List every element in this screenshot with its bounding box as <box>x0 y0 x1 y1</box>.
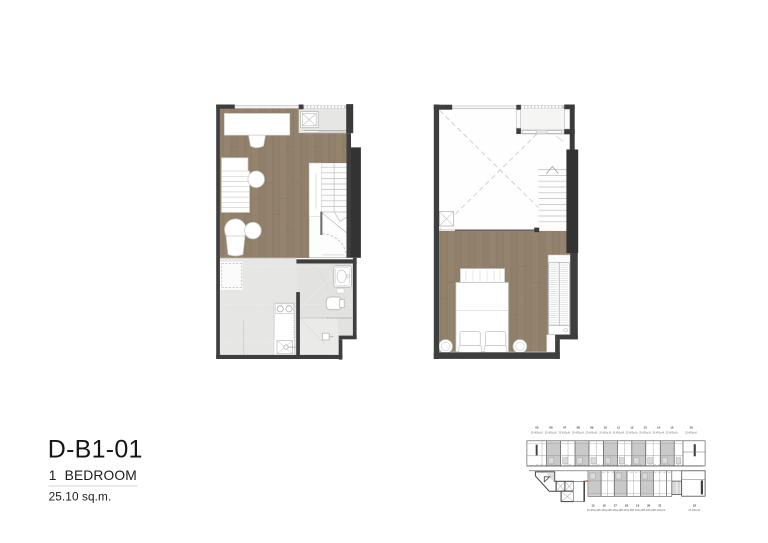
svg-text:25.10 sq.m.: 25.10 sq.m. <box>49 490 112 504</box>
svg-text:18: 18 <box>625 504 629 508</box>
svg-text:19: 19 <box>636 504 640 508</box>
svg-text:11: 11 <box>617 426 620 430</box>
svg-text:06: 06 <box>549 426 553 430</box>
svg-text:16: 16 <box>603 504 607 508</box>
svg-text:25.40Sq.M.: 25.40Sq.M. <box>572 431 585 434</box>
svg-text:20: 20 <box>647 504 651 508</box>
svg-text:25.40Sq.M.: 25.40Sq.M. <box>688 509 701 512</box>
svg-text:D-B1-01: D-B1-01 <box>48 435 143 463</box>
svg-text:25.40Sq.M.: 25.40Sq.M. <box>545 431 558 434</box>
svg-text:14: 14 <box>657 426 661 430</box>
svg-text:15: 15 <box>591 504 595 508</box>
svg-text:25.40Sq.M.: 25.40Sq.M. <box>639 431 652 434</box>
svg-text:25.40Sq.M.: 25.40Sq.M. <box>558 431 571 434</box>
svg-text:13: 13 <box>644 426 648 430</box>
svg-text:05: 05 <box>535 426 539 430</box>
svg-text:10: 10 <box>604 426 608 430</box>
svg-text:21: 21 <box>658 504 662 508</box>
svg-text:09: 09 <box>590 426 594 430</box>
svg-text:25.40Sq.M.: 25.40Sq.M. <box>626 431 639 434</box>
svg-text:25.40Sq.M.: 25.40Sq.M. <box>612 431 625 434</box>
svg-text:22: 22 <box>693 504 697 508</box>
svg-text:15: 15 <box>670 426 674 430</box>
svg-text:25.40Sq.M.: 25.40Sq.M. <box>599 431 612 434</box>
svg-text:25.40Sq.M.: 25.40Sq.M. <box>586 431 599 434</box>
svg-text:07: 07 <box>563 426 567 430</box>
svg-text:12: 12 <box>630 426 634 430</box>
svg-text:25.40Sq.M.: 25.40Sq.M. <box>652 431 665 434</box>
svg-text:25.40Sq.M.: 25.40Sq.M. <box>685 431 698 434</box>
svg-text:25.40Sq.M.: 25.40Sq.M. <box>654 509 667 512</box>
svg-text:25.40Sq.M.: 25.40Sq.M. <box>666 431 679 434</box>
svg-text:16: 16 <box>690 426 694 430</box>
svg-text:08: 08 <box>577 426 581 430</box>
svg-text:1 BEDROOM: 1 BEDROOM <box>49 468 137 483</box>
svg-text:17: 17 <box>614 504 618 508</box>
svg-text:25.40Sq.M.: 25.40Sq.M. <box>531 431 544 434</box>
